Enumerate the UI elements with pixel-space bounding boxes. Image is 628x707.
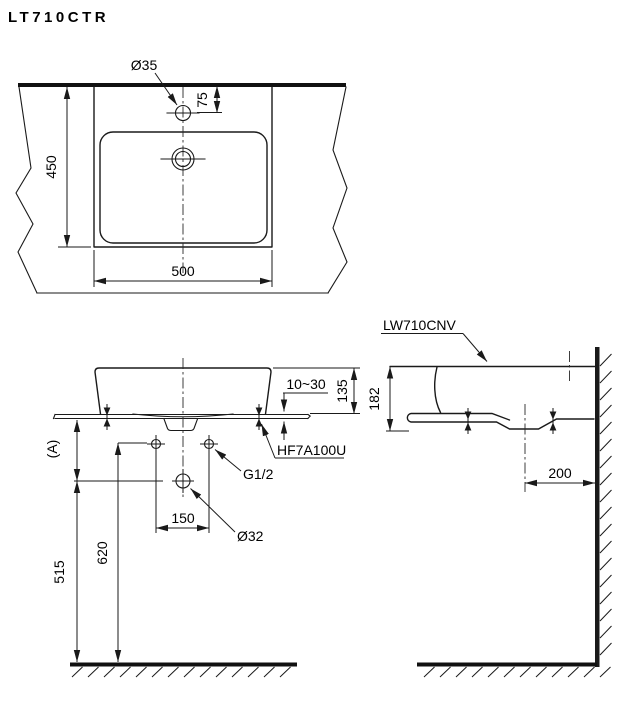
basin-bowl-top [100, 132, 267, 243]
label-hole-diameter: Ø35 [131, 57, 158, 73]
front-view: 10~30 135 HF7A100U (A) 515 620 [44, 358, 360, 677]
leader-fixing-bolt [262, 424, 276, 458]
floor-hatching-front [72, 667, 291, 677]
leader-counter-model [463, 334, 487, 362]
dim-text-height: 182 [366, 387, 382, 411]
break-line-right [328, 87, 347, 293]
basin-front-profile [435, 367, 441, 413]
label-fixing-bolt: HF7A100U [277, 442, 346, 458]
dim-text-rim-height: 135 [334, 379, 350, 403]
fixing-bolt-side-right [550, 408, 557, 434]
supply-hole-left [147, 435, 165, 453]
label-counter-model: LW710CNV [383, 317, 457, 333]
page-title: LT710CTR [8, 9, 109, 26]
label-supply-thread: G1/2 [243, 466, 274, 482]
basin-underside-profile [407, 414, 594, 430]
washbasin-installation-drawing: LT710CTR Ø35 75 450 500 [0, 0, 628, 707]
wall-line [595, 347, 600, 667]
leader-drain-diameter [191, 489, 236, 533]
fixing-bolt-right [256, 404, 263, 430]
wall-hatching [600, 354, 612, 655]
drain-hole-front [172, 469, 194, 493]
dim-text-ref-a: (A) [44, 440, 60, 459]
technical-drawing-page: LT710CTR Ø35 75 450 500 [0, 0, 628, 707]
break-line-left [16, 87, 37, 293]
leader-hole-diameter [155, 73, 177, 105]
dim-text-hole-offset: 75 [194, 92, 210, 108]
leader-supply-thread [215, 450, 241, 472]
side-view: LW710CNV 182 200 [366, 317, 612, 677]
drain-stub-front [164, 419, 198, 431]
dim-text-drain-to-wall: 200 [548, 465, 572, 481]
dim-text-depth: 450 [43, 155, 59, 179]
fixing-bolt-left [104, 404, 111, 430]
top-view: Ø35 75 450 500 [16, 57, 347, 293]
dim-text-drain-height: 515 [51, 560, 67, 584]
label-drain-diameter: Ø32 [237, 528, 264, 544]
dim-text-width: 500 [171, 263, 195, 279]
floor-hatching-side [424, 667, 611, 677]
dim-text-supply-spread: 150 [171, 510, 195, 526]
fixing-bolt-side-left [465, 408, 472, 434]
dim-text-counter-thickness: 10~30 [286, 376, 326, 392]
dim-text-supply-height: 620 [94, 541, 110, 565]
